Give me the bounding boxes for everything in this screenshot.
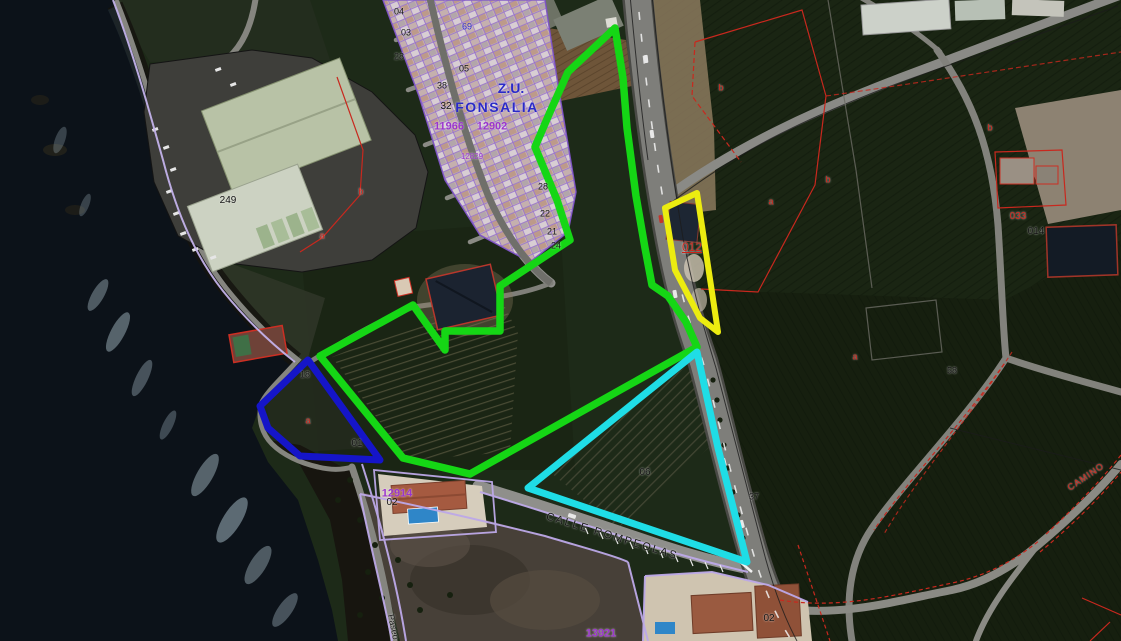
shed-top-right bbox=[1000, 158, 1034, 184]
hotel-br-pool bbox=[655, 622, 675, 634]
reservoir-top-right bbox=[1046, 225, 1118, 277]
greenhouse bbox=[861, 0, 951, 35]
map-canvas[interactable]: Z.U.FONSALIA6911966129021282904032805383… bbox=[0, 0, 1121, 641]
hotel-br-building bbox=[691, 592, 753, 633]
small-farm-building bbox=[394, 277, 412, 296]
map-layers bbox=[0, 0, 1121, 641]
